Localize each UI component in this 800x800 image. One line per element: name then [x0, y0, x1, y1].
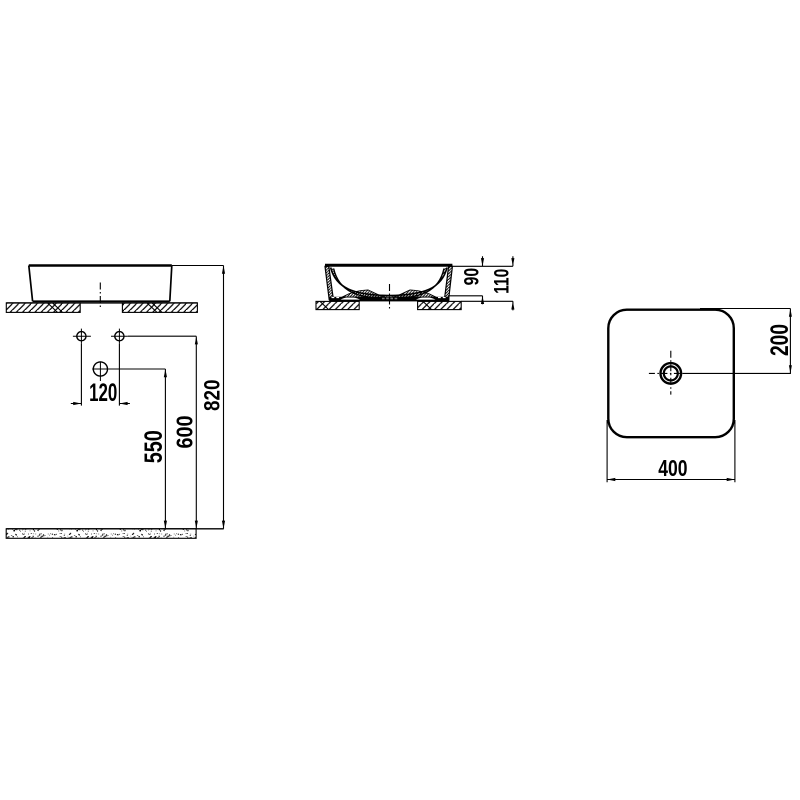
svg-text:200: 200: [767, 324, 794, 356]
svg-text:400: 400: [658, 455, 687, 481]
svg-text:820: 820: [200, 380, 225, 412]
svg-text:120: 120: [89, 379, 117, 407]
svg-text:110: 110: [489, 269, 514, 294]
svg-text:90: 90: [458, 268, 483, 286]
svg-text:600: 600: [171, 416, 197, 449]
svg-text:550: 550: [140, 430, 168, 463]
